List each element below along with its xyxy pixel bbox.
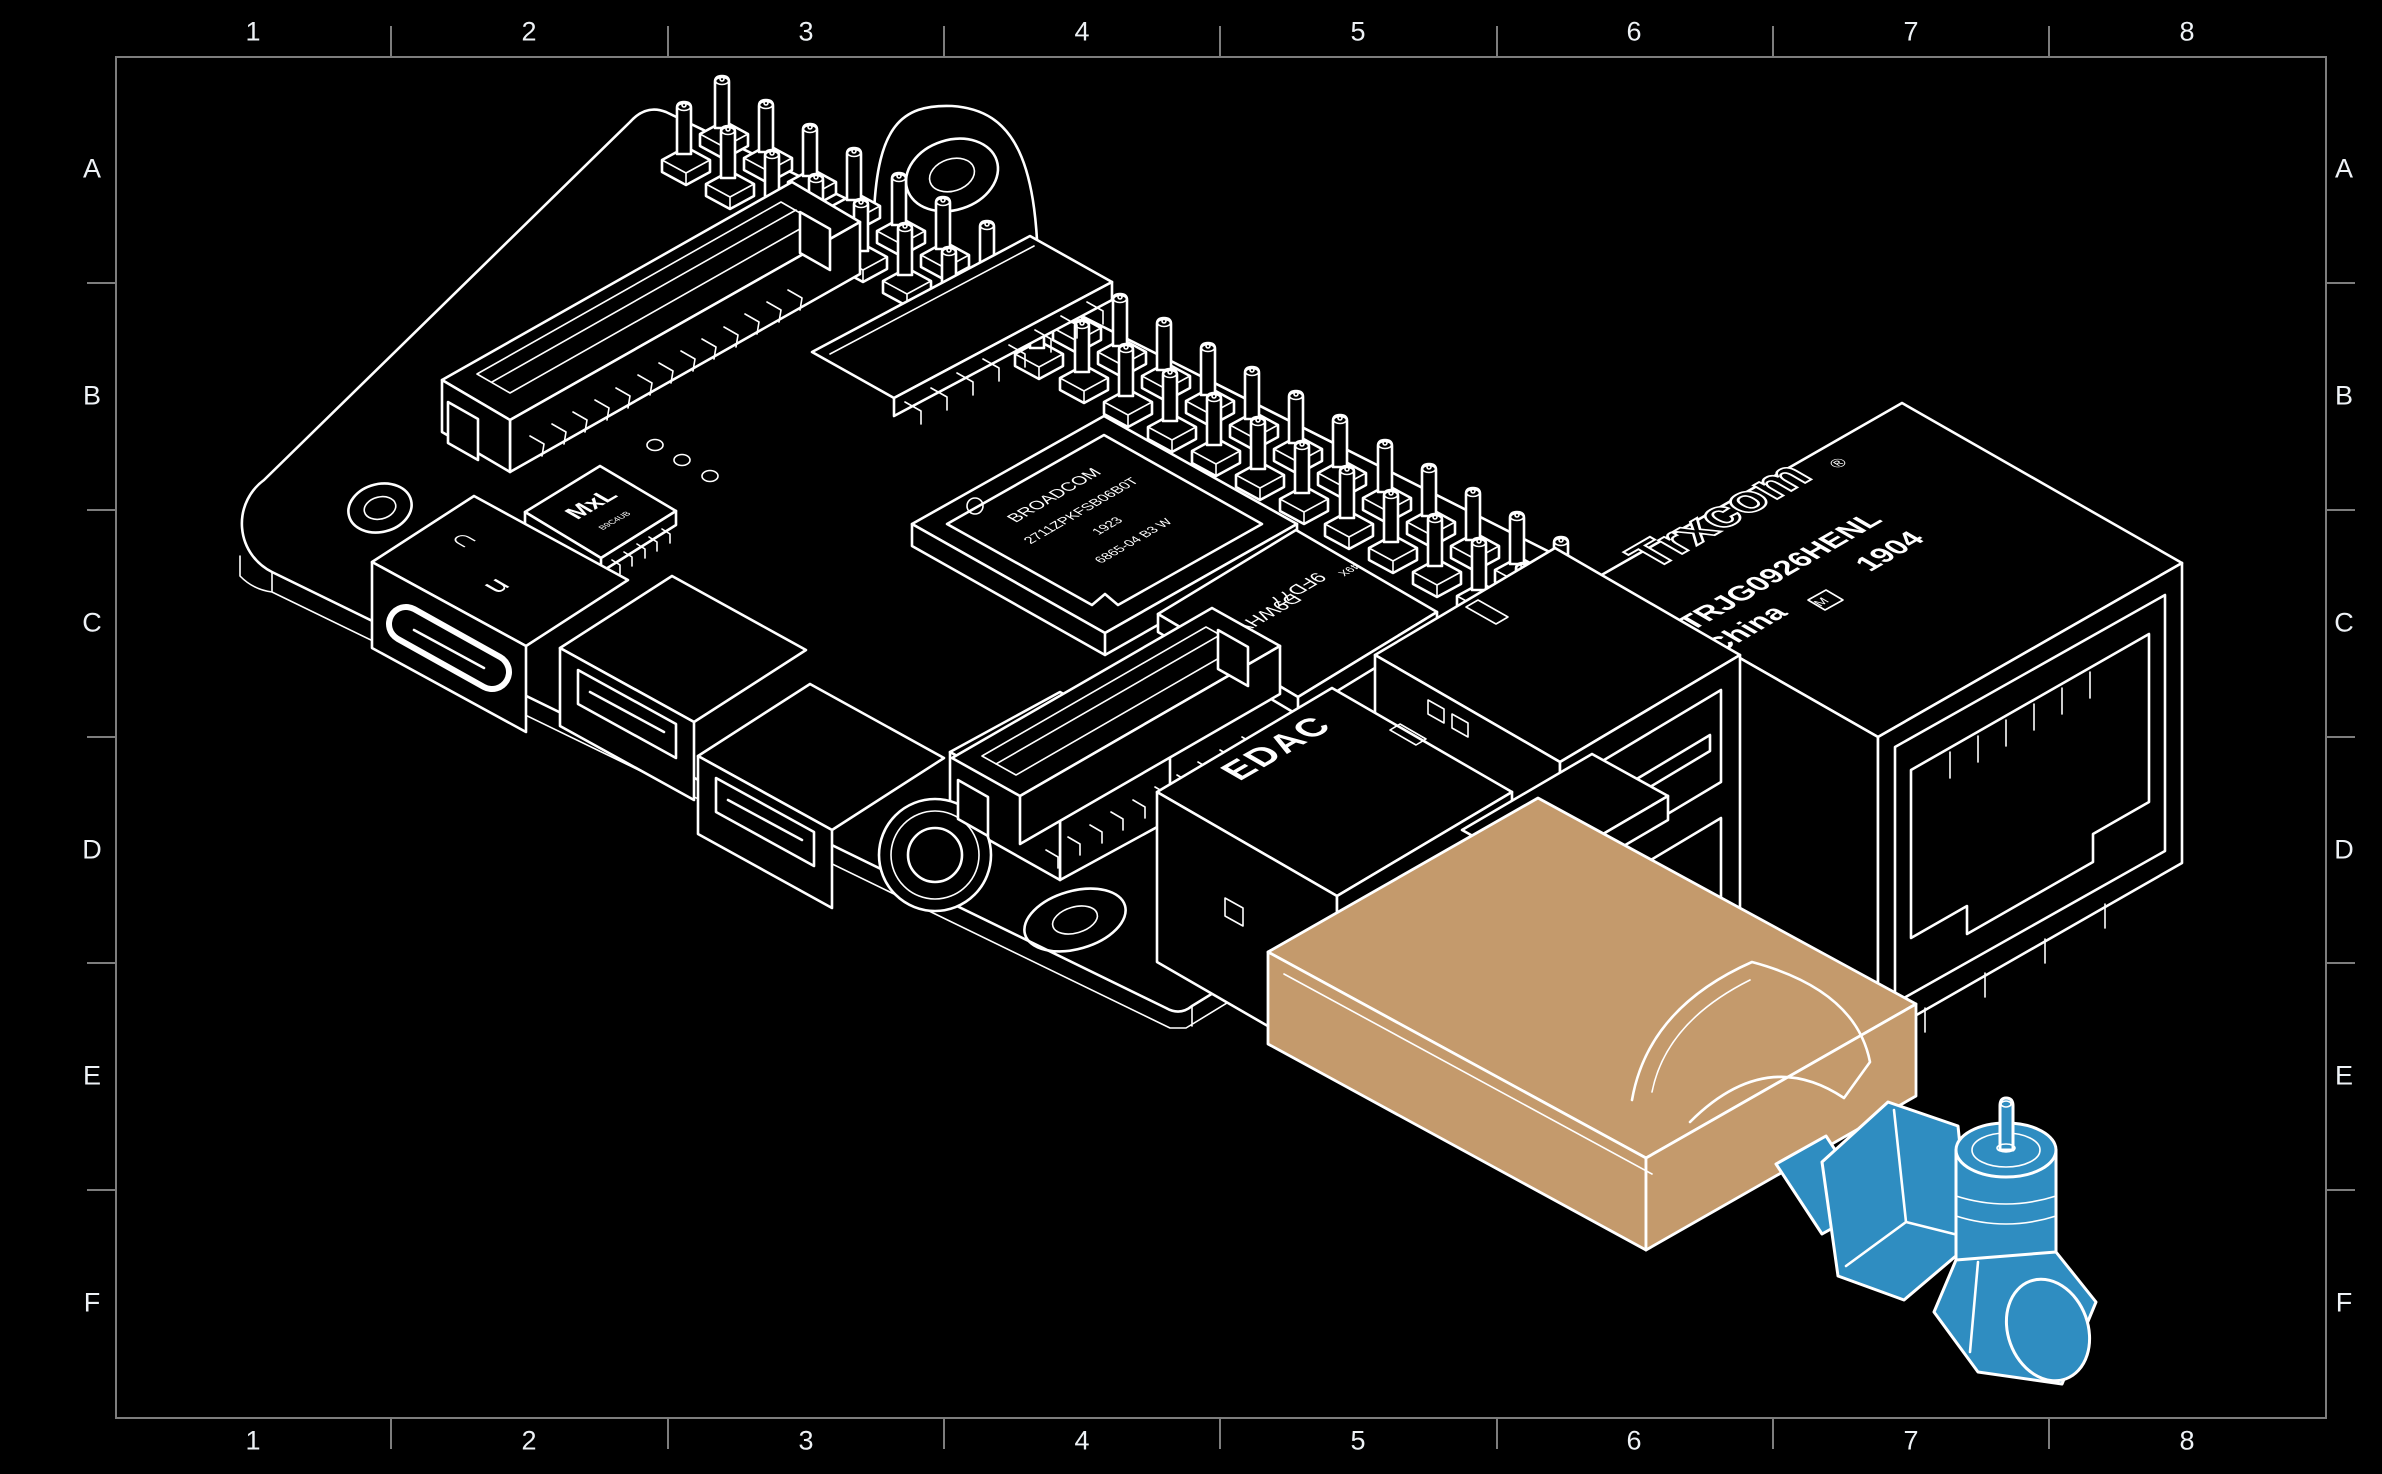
technical-drawing: BROADCOM 2711ZPKFSB06B0T 1923 6865-04 B3… [240, 76, 2182, 1393]
sma-connector [1776, 1098, 2103, 1393]
drawing-canvas: BROADCOM 2711ZPKFSB06B0T 1923 6865-04 B3… [0, 0, 2382, 1474]
